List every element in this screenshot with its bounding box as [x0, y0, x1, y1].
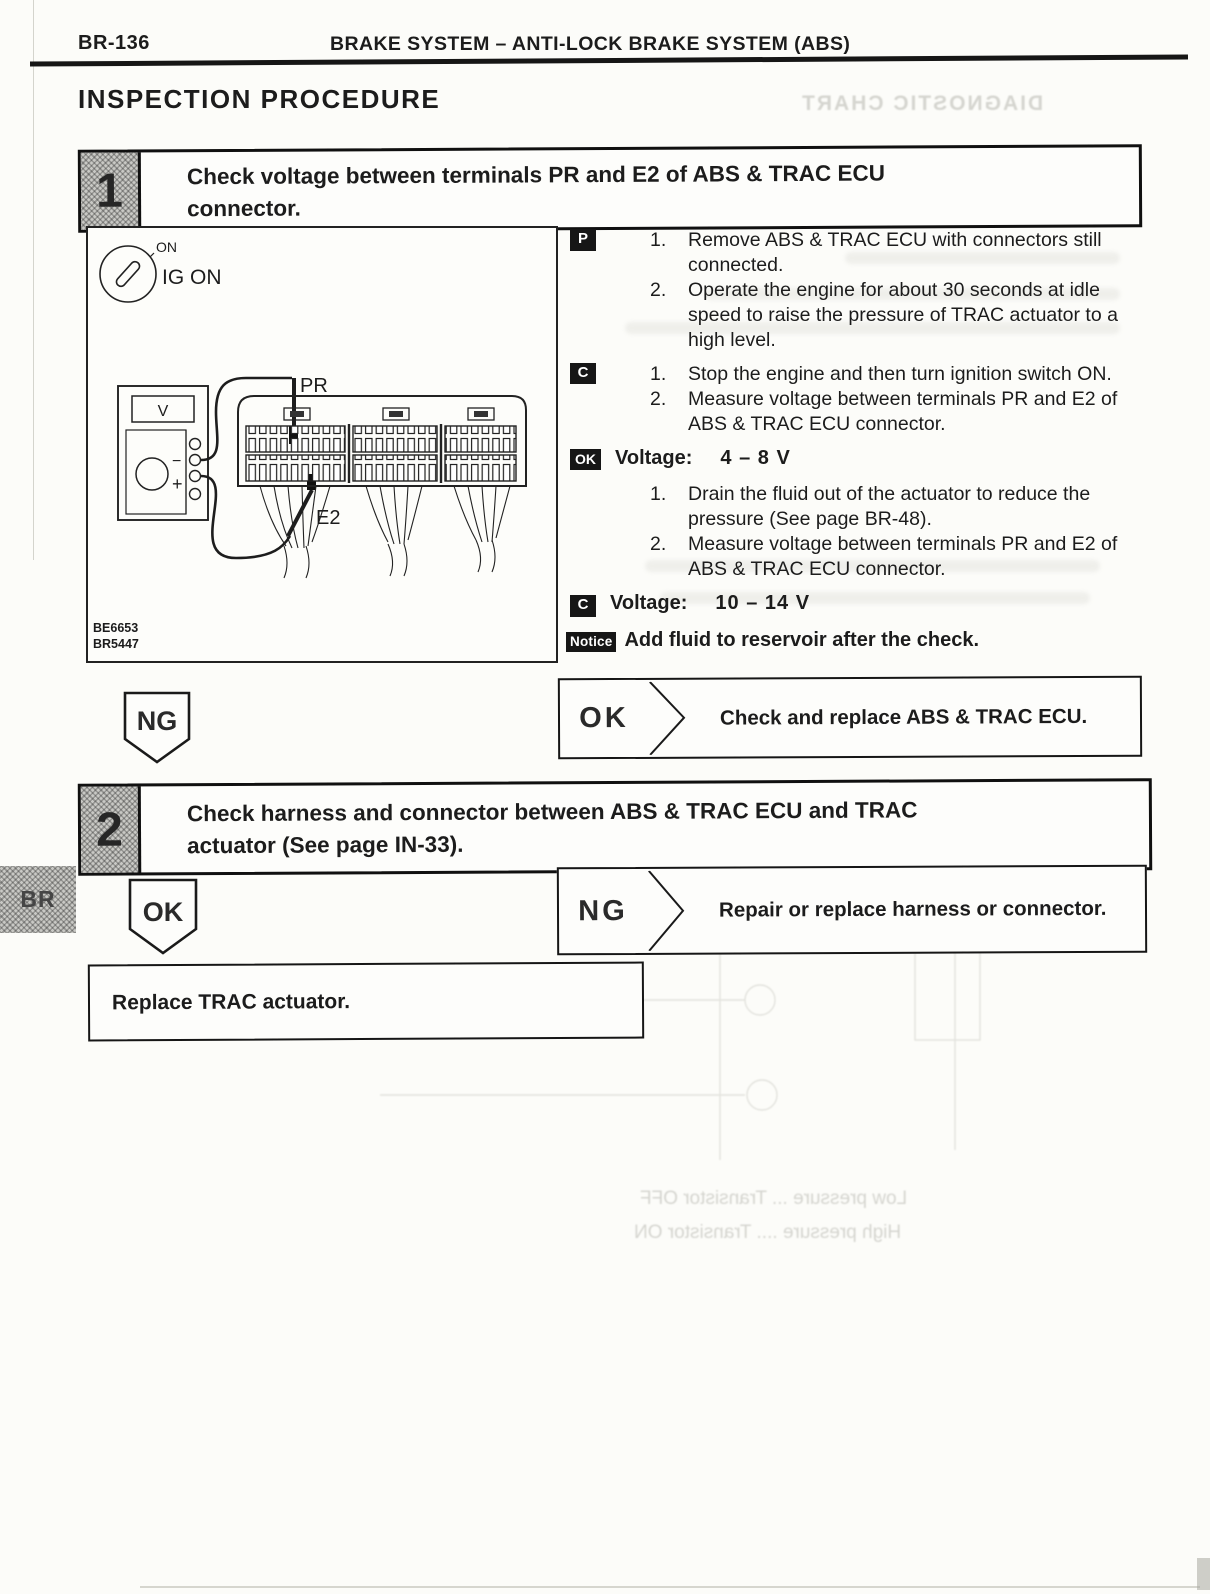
badge-notice: Notice	[566, 632, 616, 653]
badge-c: C	[570, 363, 596, 385]
wire-harness	[260, 486, 510, 578]
spec-label: Voltage:	[610, 591, 687, 617]
bleed-through-bottom-text: Low pressure ... Transistor OFF	[640, 1188, 907, 1210]
instruction-block-drain: 1. Drain the fluid out of the actuator t…	[566, 482, 1140, 582]
notice-line: Notice Add fluid to reservoir after the …	[566, 628, 1140, 654]
figure-code-2: BR5447	[93, 637, 139, 651]
header-rule	[30, 54, 1188, 66]
badge-p: P	[570, 229, 596, 251]
step1-header: 1 Check voltage between terminals PR and…	[78, 144, 1142, 233]
voltmeter-minus: −	[172, 453, 181, 470]
instruction-block-check: C 1. Stop the engine and then turn ignit…	[566, 362, 1140, 437]
step1-instructions: P 1. Remove ABS & TRAC ECU with connecto…	[566, 228, 1140, 653]
page-code: BR-136	[78, 32, 150, 55]
bleed-through-top-right: DIAGNOSTIC CHART	[800, 92, 1043, 116]
ng-result-label: NG	[559, 894, 647, 927]
item-number: 1.	[650, 362, 688, 387]
item-text: Drain the fluid out of the actuator to r…	[688, 482, 1140, 532]
step2-title: Check harness and connector between ABS …	[141, 782, 987, 872]
chevron-divider-icon	[647, 871, 687, 951]
scan-corner-shadow	[1197, 1558, 1210, 1590]
ng-result-action: Repair or replace harness or connector.	[719, 897, 1106, 923]
step2-number: 2	[81, 786, 141, 872]
final-action-box: Replace TRAC actuator.	[88, 962, 644, 1042]
step2-ok-arrow: OK	[127, 877, 199, 962]
section-title: INSPECTION PROCEDURE	[78, 84, 440, 115]
bleed-through-bottom-text: High pressure .... Transistor ON	[634, 1222, 901, 1244]
item-number: 2.	[650, 532, 688, 582]
step2-header: 2 Check harness and connector between AB…	[78, 778, 1152, 876]
instruction-item: 1. Drain the fluid out of the actuator t…	[650, 482, 1140, 532]
ignition-on-label: ON	[156, 239, 177, 255]
instruction-item: 2. Measure voltage between terminals PR …	[650, 387, 1140, 437]
e2-label: E2	[316, 507, 340, 529]
voltage-spec-ok: OK Voltage: 4 – 8 V	[566, 446, 1140, 472]
step1-title: Check voltage between terminals PR and E…	[141, 148, 977, 229]
spec-value: 10 – 14 V	[715, 591, 810, 617]
instruction-item: 1. Remove ABS & TRAC ECU with connectors…	[650, 228, 1140, 278]
item-text: Stop the engine and then turn ignition s…	[688, 362, 1112, 387]
voltmeter-connector-illustration: ON IG ON V − +	[88, 228, 552, 657]
item-text: Remove ABS & TRAC ECU with connectors st…	[688, 228, 1140, 278]
item-number: 1.	[650, 482, 688, 532]
scan-margin-line	[33, 0, 34, 560]
ok-arrow-label: OK	[143, 897, 184, 927]
spec-label: Voltage:	[615, 446, 692, 472]
step1-figure: ON IG ON V − +	[86, 226, 558, 663]
pr-label: PR	[300, 375, 328, 397]
ng-arrow-label: NG	[137, 706, 178, 736]
chevron-divider-icon	[648, 682, 688, 755]
ignition-key-icon	[100, 246, 156, 302]
page-header-title: BRAKE SYSTEM – ANTI-LOCK BRAKE SYSTEM (A…	[330, 33, 850, 56]
badge-ok: OK	[570, 449, 601, 470]
figure-code-1: BE6653	[93, 621, 138, 635]
section-tab-br: BR	[0, 866, 76, 933]
final-action-text: Replace TRAC actuator.	[90, 990, 350, 1015]
voltage-spec-c: C Voltage: 10 – 14 V	[566, 591, 1140, 617]
voltmeter-plus: +	[172, 474, 183, 494]
manual-page: DIAGNOSTIC CHART Low pressure ... Transi…	[0, 0, 1210, 1594]
step2-ng-result-box: NG Repair or replace harness or connecto…	[557, 865, 1147, 956]
ecu-connector	[238, 396, 526, 486]
item-text: Measure voltage between terminals PR and…	[688, 532, 1140, 582]
instruction-block-prepare: P 1. Remove ABS & TRAC ECU with connecto…	[566, 228, 1140, 353]
ok-result-label: OK	[560, 702, 648, 735]
step1-ok-result-box: OK Check and replace ABS & TRAC ECU.	[558, 676, 1142, 760]
voltmeter-v-label: V	[158, 403, 169, 420]
item-number: 2.	[650, 387, 688, 437]
notice-text: Add fluid to reservoir after the check.	[624, 628, 979, 654]
ok-result-action: Check and replace ABS & TRAC ECU.	[720, 704, 1087, 730]
instruction-item: 2. Operate the engine for about 30 secon…	[650, 278, 1140, 353]
item-number: 1.	[650, 228, 688, 278]
scan-bottom-edge	[140, 1586, 1200, 1588]
instruction-item: 1. Stop the engine and then turn ignitio…	[650, 362, 1140, 387]
spec-value: 4 – 8 V	[720, 446, 790, 472]
ig-on-label: IG ON	[162, 266, 222, 289]
badge-c: C	[570, 595, 596, 617]
item-text: Measure voltage between terminals PR and…	[688, 387, 1140, 437]
item-number: 2.	[650, 278, 688, 353]
instruction-item: 2. Measure voltage between terminals PR …	[650, 532, 1140, 582]
step1-number: 1	[81, 152, 141, 229]
item-text: Operate the engine for about 30 seconds …	[688, 278, 1140, 353]
step1-ng-arrow: NG	[122, 690, 192, 771]
